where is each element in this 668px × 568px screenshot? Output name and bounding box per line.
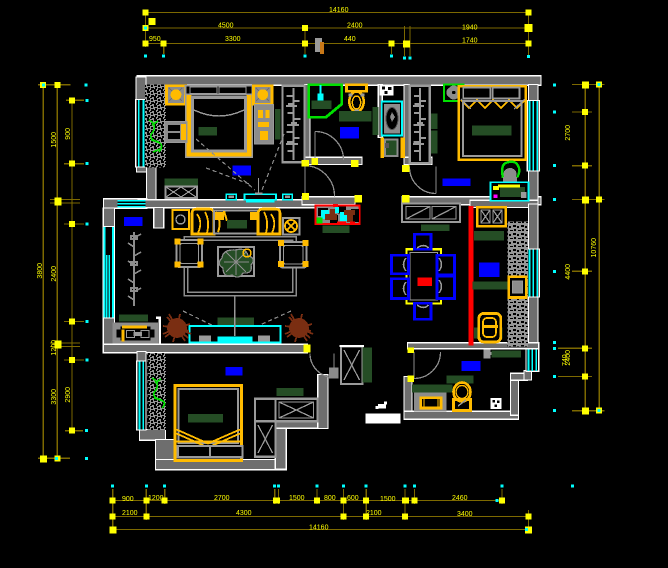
- svg-text:2700: 2700: [214, 495, 230, 502]
- svg-text:1940: 1940: [462, 25, 478, 32]
- svg-text:10760: 10760: [591, 238, 598, 258]
- svg-text:2100: 2100: [366, 510, 382, 517]
- svg-text:1500: 1500: [380, 496, 396, 503]
- svg-text:440: 440: [344, 36, 356, 43]
- svg-text:2100: 2100: [122, 510, 138, 517]
- svg-text:4300: 4300: [236, 510, 252, 517]
- svg-text:2400: 2400: [51, 266, 58, 282]
- svg-text:1740: 1740: [462, 38, 478, 45]
- svg-text:2900: 2900: [65, 387, 72, 403]
- svg-text:14160: 14160: [309, 525, 329, 532]
- svg-text:2400: 2400: [347, 23, 363, 30]
- svg-text:3300: 3300: [225, 36, 241, 43]
- svg-text:4500: 4500: [218, 23, 234, 30]
- svg-text:14160: 14160: [329, 7, 349, 14]
- svg-text:900: 900: [65, 128, 72, 140]
- svg-text:2460: 2460: [452, 495, 468, 502]
- svg-text:1500: 1500: [51, 132, 58, 148]
- svg-text:600: 600: [347, 495, 359, 502]
- svg-text:900: 900: [122, 496, 134, 503]
- svg-text:3800: 3800: [37, 263, 44, 279]
- svg-text:2700: 2700: [565, 125, 572, 141]
- svg-text:950: 950: [149, 36, 161, 43]
- svg-text:740: 740: [562, 354, 569, 366]
- svg-text:1200: 1200: [51, 340, 58, 356]
- svg-text:3300: 3300: [51, 389, 58, 405]
- svg-text:800: 800: [324, 495, 336, 502]
- svg-text:1200: 1200: [148, 495, 164, 502]
- svg-text:3400: 3400: [457, 511, 473, 518]
- svg-text:1500: 1500: [289, 495, 305, 502]
- svg-text:4400: 4400: [565, 264, 572, 280]
